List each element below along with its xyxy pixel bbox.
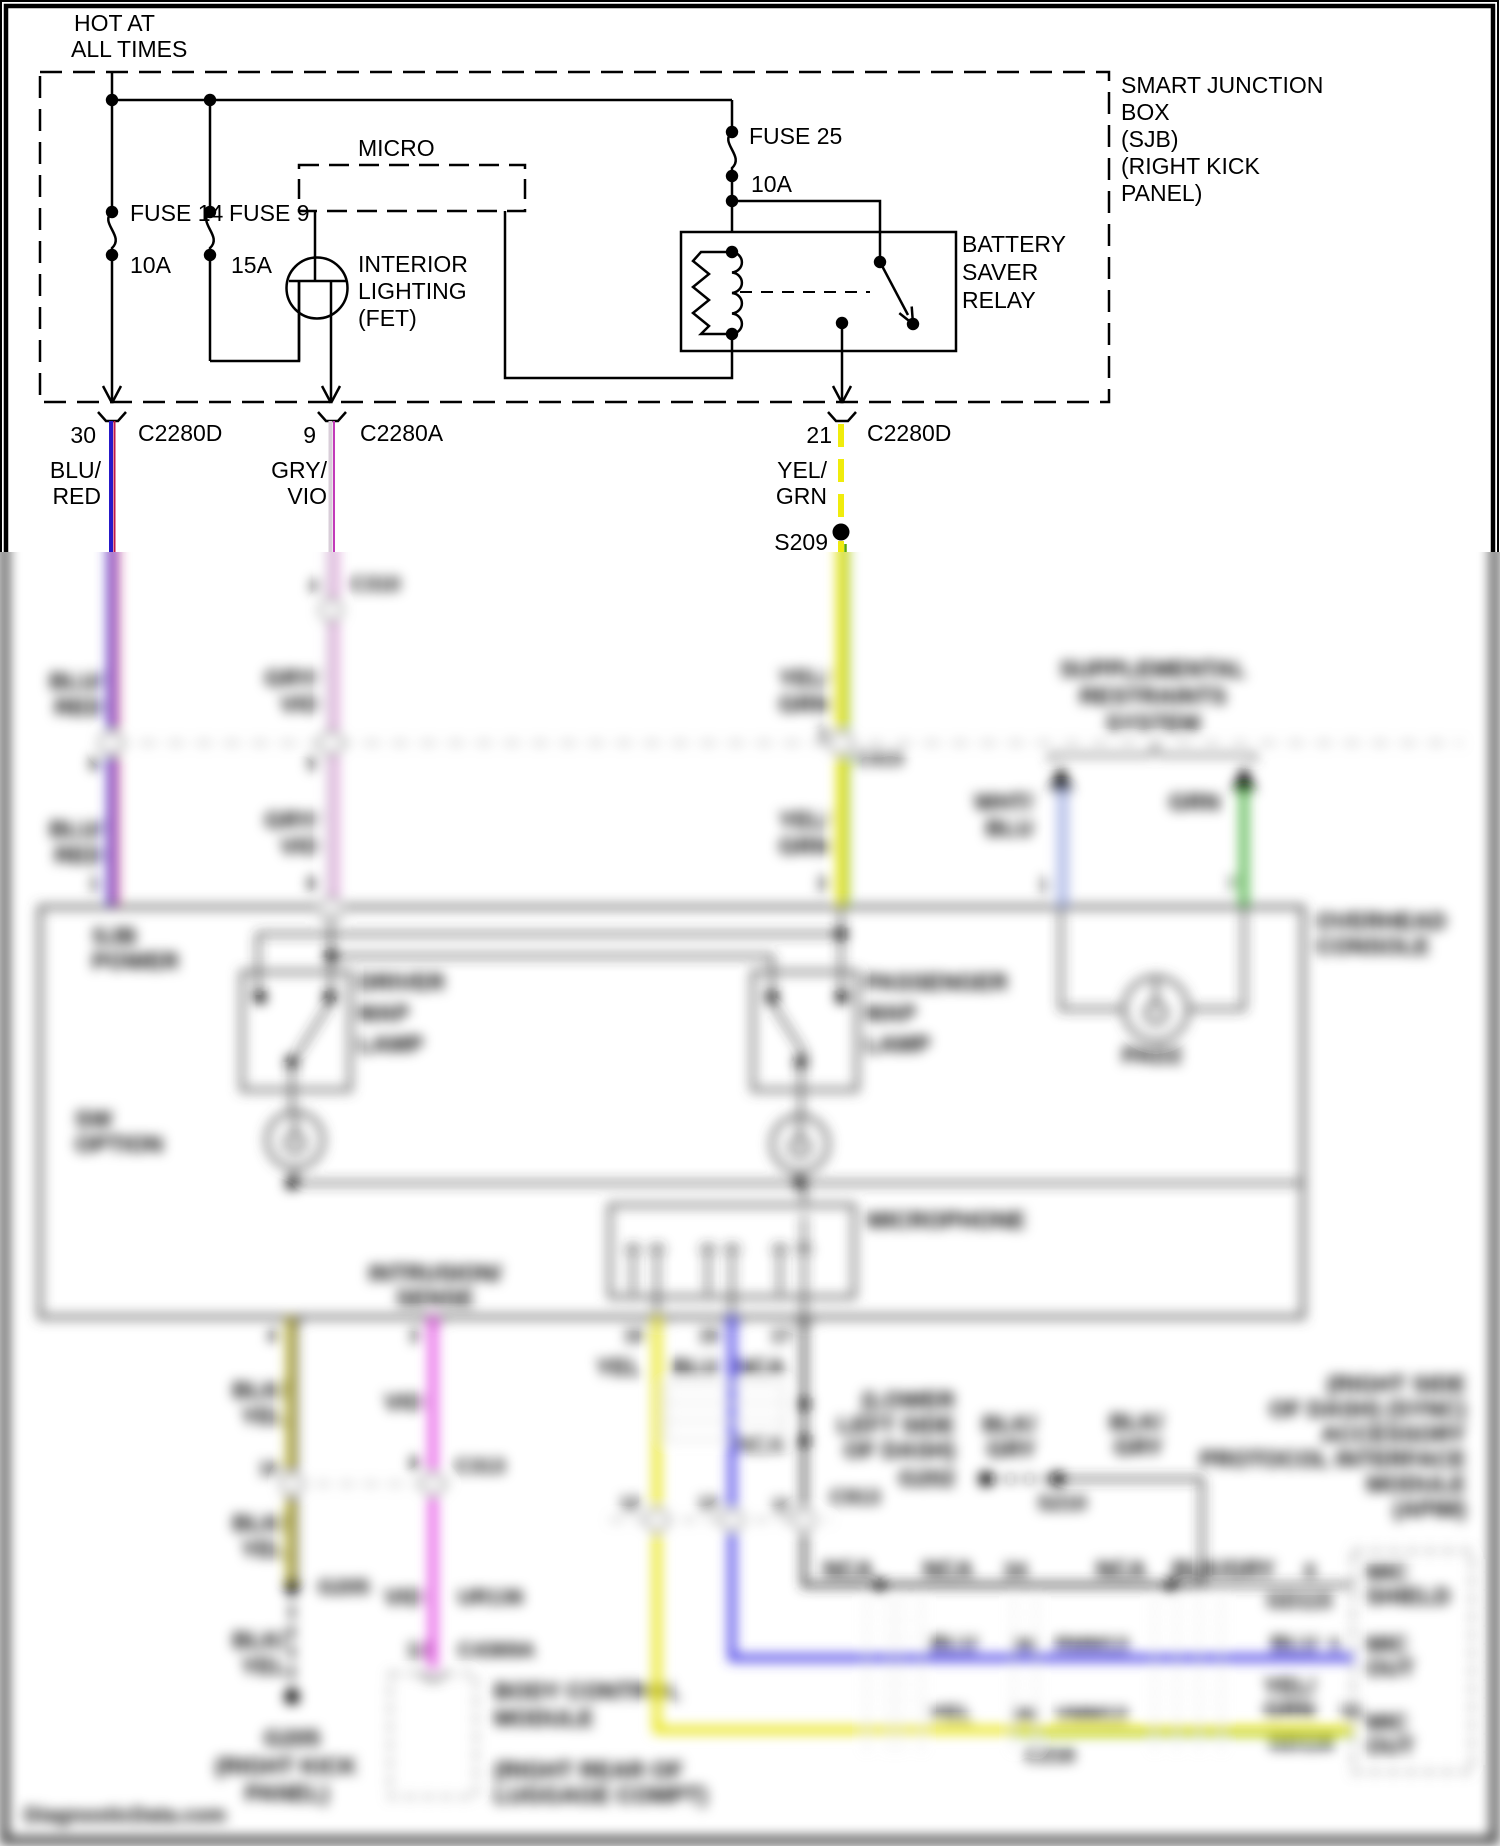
svg-text:MIC: MIC bbox=[1366, 1709, 1408, 1735]
svg-text:GRN: GRN bbox=[779, 691, 830, 717]
svg-text:15: 15 bbox=[699, 1326, 721, 1347]
svg-text:SMART JUNCTION: SMART JUNCTION bbox=[1121, 72, 1323, 98]
svg-text:BLK/: BLK/ bbox=[982, 1411, 1036, 1437]
svg-text:YEL/: YEL/ bbox=[777, 457, 827, 483]
svg-text:BOX: BOX bbox=[1121, 99, 1170, 125]
svg-text:C2280D: C2280D bbox=[138, 420, 222, 446]
svg-text:7: 7 bbox=[1227, 875, 1238, 896]
svg-text:GRY/: GRY/ bbox=[265, 807, 321, 833]
svg-text:MODULE: MODULE bbox=[1366, 1471, 1466, 1497]
svg-text:PANEL): PANEL) bbox=[1121, 180, 1202, 206]
svg-text:(RIGHT REAR OF: (RIGHT REAR OF bbox=[494, 1757, 683, 1783]
svg-text:LEFT SIDE: LEFT SIDE bbox=[837, 1412, 955, 1438]
svg-text:INTRUSION/: INTRUSION/ bbox=[369, 1260, 503, 1286]
svg-text:BLU: BLU bbox=[1271, 1631, 1318, 1657]
svg-text:9: 9 bbox=[303, 422, 316, 448]
svg-text:BLU: BLU bbox=[986, 815, 1033, 841]
svg-text:RED: RED bbox=[52, 483, 101, 509]
svg-text:S210: S210 bbox=[1037, 1492, 1086, 1515]
svg-text:SAVER: SAVER bbox=[962, 259, 1038, 285]
svg-text:10A: 10A bbox=[751, 171, 793, 197]
svg-text:DRIVER: DRIVER bbox=[358, 969, 445, 995]
svg-text:GRY/: GRY/ bbox=[265, 665, 321, 691]
svg-text:YEL/: YEL/ bbox=[1264, 1673, 1316, 1699]
svg-text:ACCESSORY: ACCESSORY bbox=[1321, 1421, 1466, 1447]
svg-text:PAD2: PAD2 bbox=[1122, 1042, 1182, 1068]
svg-text:POWER: POWER bbox=[92, 948, 179, 974]
svg-text:(APIM): (APIM) bbox=[1393, 1496, 1466, 1522]
svg-text:NCA: NCA bbox=[735, 1354, 785, 1380]
svg-text:(LOWER: (LOWER bbox=[862, 1387, 956, 1413]
svg-text:INTERIOR: INTERIOR bbox=[358, 251, 468, 277]
svg-text:C310: C310 bbox=[350, 573, 400, 596]
svg-text:VIO: VIO bbox=[287, 483, 327, 509]
svg-text:6: 6 bbox=[89, 754, 100, 775]
svg-text:(SJB): (SJB) bbox=[1121, 126, 1179, 152]
svg-text:VIO: VIO bbox=[280, 833, 320, 859]
svg-text:OF DASH) (SYNC): OF DASH) (SYNC) bbox=[1269, 1396, 1466, 1422]
svg-text:10: 10 bbox=[624, 1326, 645, 1347]
svg-text:YEL: YEL bbox=[928, 1701, 973, 1727]
svg-text:DiagnosticData.com: DiagnosticData.com bbox=[24, 1804, 226, 1827]
svg-text:3: 3 bbox=[817, 874, 828, 895]
svg-text:BODY CONTROL: BODY CONTROL bbox=[494, 1678, 680, 1704]
svg-text:VIO: VIO bbox=[384, 1389, 424, 1415]
svg-text:SW: SW bbox=[75, 1106, 112, 1132]
svg-text:GD115: GD115 bbox=[1267, 1590, 1333, 1613]
svg-text:YEL/: YEL/ bbox=[779, 807, 831, 833]
svg-text:BATTERY: BATTERY bbox=[962, 231, 1066, 257]
svg-text:36: 36 bbox=[1013, 1634, 1036, 1657]
svg-text:RELAY: RELAY bbox=[962, 287, 1036, 313]
svg-text:1: 1 bbox=[1039, 875, 1050, 896]
svg-text:GRN: GRN bbox=[1264, 1697, 1315, 1723]
svg-text:34: 34 bbox=[1004, 1559, 1028, 1582]
svg-text:6: 6 bbox=[1305, 1561, 1316, 1582]
svg-text:2: 2 bbox=[818, 724, 829, 745]
svg-text:C2280D: C2280D bbox=[867, 420, 951, 446]
svg-text:RMM13: RMM13 bbox=[1055, 1634, 1129, 1657]
svg-text:(RIGHT SIDE: (RIGHT SIDE bbox=[1327, 1371, 1466, 1397]
svg-text:LUGGAGE COMPT): LUGGAGE COMPT) bbox=[494, 1782, 707, 1808]
svg-text:5: 5 bbox=[307, 754, 318, 775]
svg-text:21: 21 bbox=[806, 422, 832, 448]
svg-text:OVERHEAD: OVERHEAD bbox=[1316, 908, 1446, 934]
svg-text:LIGHTING: LIGHTING bbox=[358, 278, 467, 304]
svg-text:BLU/: BLU/ bbox=[49, 668, 103, 694]
svg-text:3: 3 bbox=[409, 1326, 420, 1347]
svg-text:13: 13 bbox=[698, 1494, 719, 1515]
svg-text:GRY: GRY bbox=[987, 1436, 1036, 1462]
svg-text:G202: G202 bbox=[899, 1465, 955, 1491]
svg-text:CONSOLE: CONSOLE bbox=[1316, 933, 1430, 959]
svg-text:MIC: MIC bbox=[1366, 1631, 1408, 1657]
svg-text:LAMP: LAMP bbox=[358, 1031, 423, 1057]
svg-text:SJB: SJB bbox=[92, 923, 137, 949]
svg-text:C313: C313 bbox=[853, 747, 903, 770]
svg-text:GRN: GRN bbox=[1169, 789, 1220, 815]
svg-text:4: 4 bbox=[309, 576, 320, 597]
svg-text:BLK/: BLK/ bbox=[232, 1510, 286, 1536]
svg-text:NCA: NCA bbox=[923, 1556, 973, 1582]
svg-text:(RIGHT KICK: (RIGHT KICK bbox=[215, 1753, 357, 1779]
svg-text:SYSTEM: SYSTEM bbox=[1106, 710, 1201, 736]
svg-text:4: 4 bbox=[267, 1326, 278, 1347]
svg-text:PANEL): PANEL) bbox=[245, 1780, 329, 1806]
svg-text:MODULE: MODULE bbox=[494, 1705, 594, 1731]
svg-text:BLU: BLU bbox=[672, 1354, 719, 1380]
svg-text:12: 12 bbox=[620, 1494, 641, 1515]
svg-text:NCA: NCA bbox=[1096, 1556, 1146, 1582]
svg-text:C4369A: C4369A bbox=[458, 1639, 535, 1662]
svg-text:15A: 15A bbox=[231, 252, 273, 278]
svg-text:UR136: UR136 bbox=[458, 1586, 523, 1609]
svg-text:WHT/: WHT/ bbox=[974, 789, 1033, 815]
svg-text:SUPPLEMENTAL: SUPPLEMENTAL bbox=[1060, 656, 1246, 682]
svg-text:C913: C913 bbox=[830, 1486, 880, 1509]
svg-text:PROTOCOL INTERFACE: PROTOCOL INTERFACE bbox=[1200, 1446, 1466, 1472]
svg-text:8: 8 bbox=[409, 1454, 420, 1475]
svg-text:12: 12 bbox=[407, 1639, 430, 1662]
svg-text:6: 6 bbox=[307, 874, 318, 895]
svg-text:SHIELD: SHIELD bbox=[1366, 1583, 1450, 1609]
svg-text:PASSENGER: PASSENGER bbox=[865, 969, 1008, 995]
svg-text:LAMP: LAMP bbox=[865, 1031, 930, 1057]
svg-text:C216: C216 bbox=[1025, 1744, 1075, 1767]
svg-text:G205: G205 bbox=[318, 1576, 370, 1599]
svg-text:GRY: GRY bbox=[1114, 1434, 1163, 1460]
svg-text:17: 17 bbox=[771, 1326, 792, 1347]
svg-text:1: 1 bbox=[89, 874, 100, 895]
svg-text:MIC: MIC bbox=[1366, 1559, 1408, 1585]
svg-text:YEL: YEL bbox=[241, 1653, 286, 1679]
svg-text:S209: S209 bbox=[774, 529, 828, 555]
svg-text:SENSE: SENSE bbox=[396, 1285, 474, 1311]
svg-text:MAP: MAP bbox=[358, 1000, 409, 1026]
svg-text:MICROPHONE: MICROPHONE bbox=[867, 1207, 1025, 1233]
svg-text:C313: C313 bbox=[455, 1455, 505, 1478]
svg-text:GRN: GRN bbox=[779, 833, 830, 859]
svg-text:OUT: OUT bbox=[1366, 1733, 1415, 1759]
svg-text:ALL TIMES: ALL TIMES bbox=[71, 36, 187, 62]
svg-text:(RIGHT KICK: (RIGHT KICK bbox=[1121, 153, 1261, 179]
svg-text:30: 30 bbox=[70, 422, 96, 448]
svg-text:RED: RED bbox=[54, 842, 103, 868]
svg-text:BLU/: BLU/ bbox=[49, 816, 103, 842]
svg-text:BLU/: BLU/ bbox=[50, 457, 102, 483]
svg-text:FUSE 9: FUSE 9 bbox=[229, 200, 310, 226]
svg-text:BLK/GRY: BLK/GRY bbox=[1172, 1556, 1275, 1582]
svg-text:G205: G205 bbox=[264, 1725, 320, 1751]
svg-text:OPTION: OPTION bbox=[75, 1131, 163, 1157]
svg-text:YEL: YEL bbox=[596, 1354, 641, 1380]
svg-text:10: 10 bbox=[259, 1459, 280, 1480]
svg-text:GRY/: GRY/ bbox=[271, 457, 327, 483]
svg-text:10A: 10A bbox=[130, 252, 172, 278]
svg-text:HOT AT: HOT AT bbox=[74, 10, 155, 36]
svg-text:NCA: NCA bbox=[735, 1431, 785, 1457]
svg-text:(FET): (FET) bbox=[358, 305, 417, 331]
svg-text:RED: RED bbox=[54, 694, 103, 720]
svg-text:MICRO: MICRO bbox=[358, 135, 435, 161]
svg-text:GRN: GRN bbox=[776, 483, 827, 509]
svg-text:OUT: OUT bbox=[1366, 1655, 1415, 1681]
svg-text:YEL/: YEL/ bbox=[779, 665, 831, 691]
svg-text:FUSE 25: FUSE 25 bbox=[749, 123, 842, 149]
svg-text:VMM13: VMM13 bbox=[1055, 1704, 1127, 1727]
svg-text:YEL: YEL bbox=[241, 1536, 286, 1562]
svg-text:NCA: NCA bbox=[823, 1556, 873, 1582]
svg-text:11: 11 bbox=[772, 1496, 793, 1517]
svg-text:38: 38 bbox=[1340, 1702, 1361, 1723]
svg-text:C2280A: C2280A bbox=[360, 420, 444, 446]
svg-text:YEL: YEL bbox=[241, 1403, 286, 1429]
svg-text:RESTRAINTS: RESTRAINTS bbox=[1080, 683, 1227, 709]
svg-text:VIO: VIO bbox=[384, 1584, 424, 1610]
svg-text:MAP: MAP bbox=[865, 1000, 916, 1026]
svg-text:VIO: VIO bbox=[280, 691, 320, 717]
svg-text:BLK/: BLK/ bbox=[232, 1627, 286, 1653]
svg-text:BLU: BLU bbox=[930, 1631, 977, 1657]
svg-text:38: 38 bbox=[1013, 1704, 1037, 1727]
svg-text:BLK/: BLK/ bbox=[232, 1377, 286, 1403]
svg-text:OF DASH): OF DASH) bbox=[844, 1437, 955, 1463]
svg-text:BLK/: BLK/ bbox=[1109, 1409, 1163, 1435]
svg-text:5: 5 bbox=[1329, 1636, 1340, 1657]
svg-text:GD116: GD116 bbox=[1269, 1732, 1334, 1755]
